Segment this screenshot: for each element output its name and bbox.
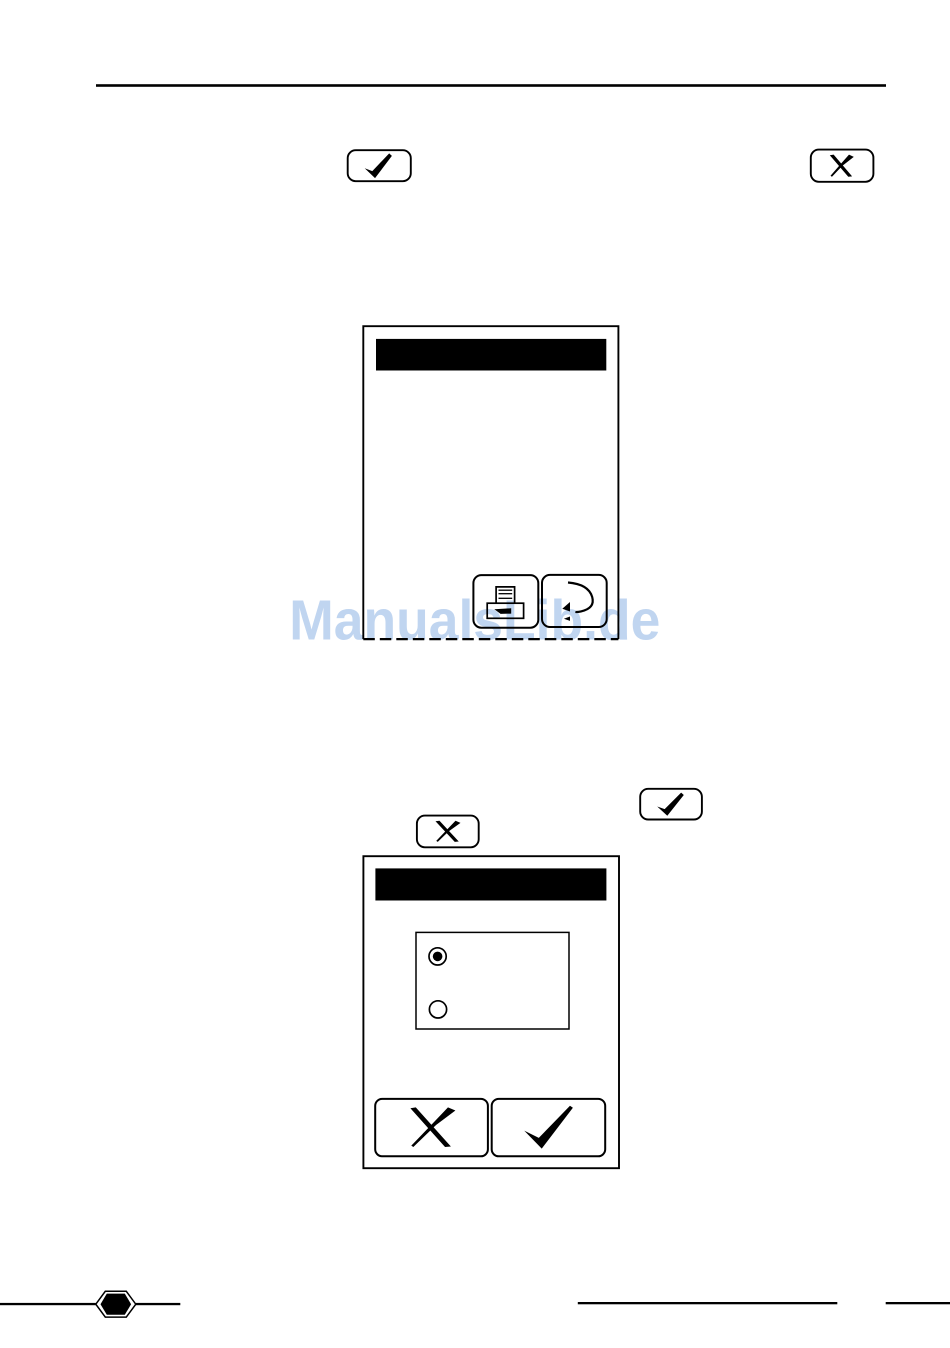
svg-text:ManualsLib.de: ManualsLib.de <box>289 589 660 653</box>
